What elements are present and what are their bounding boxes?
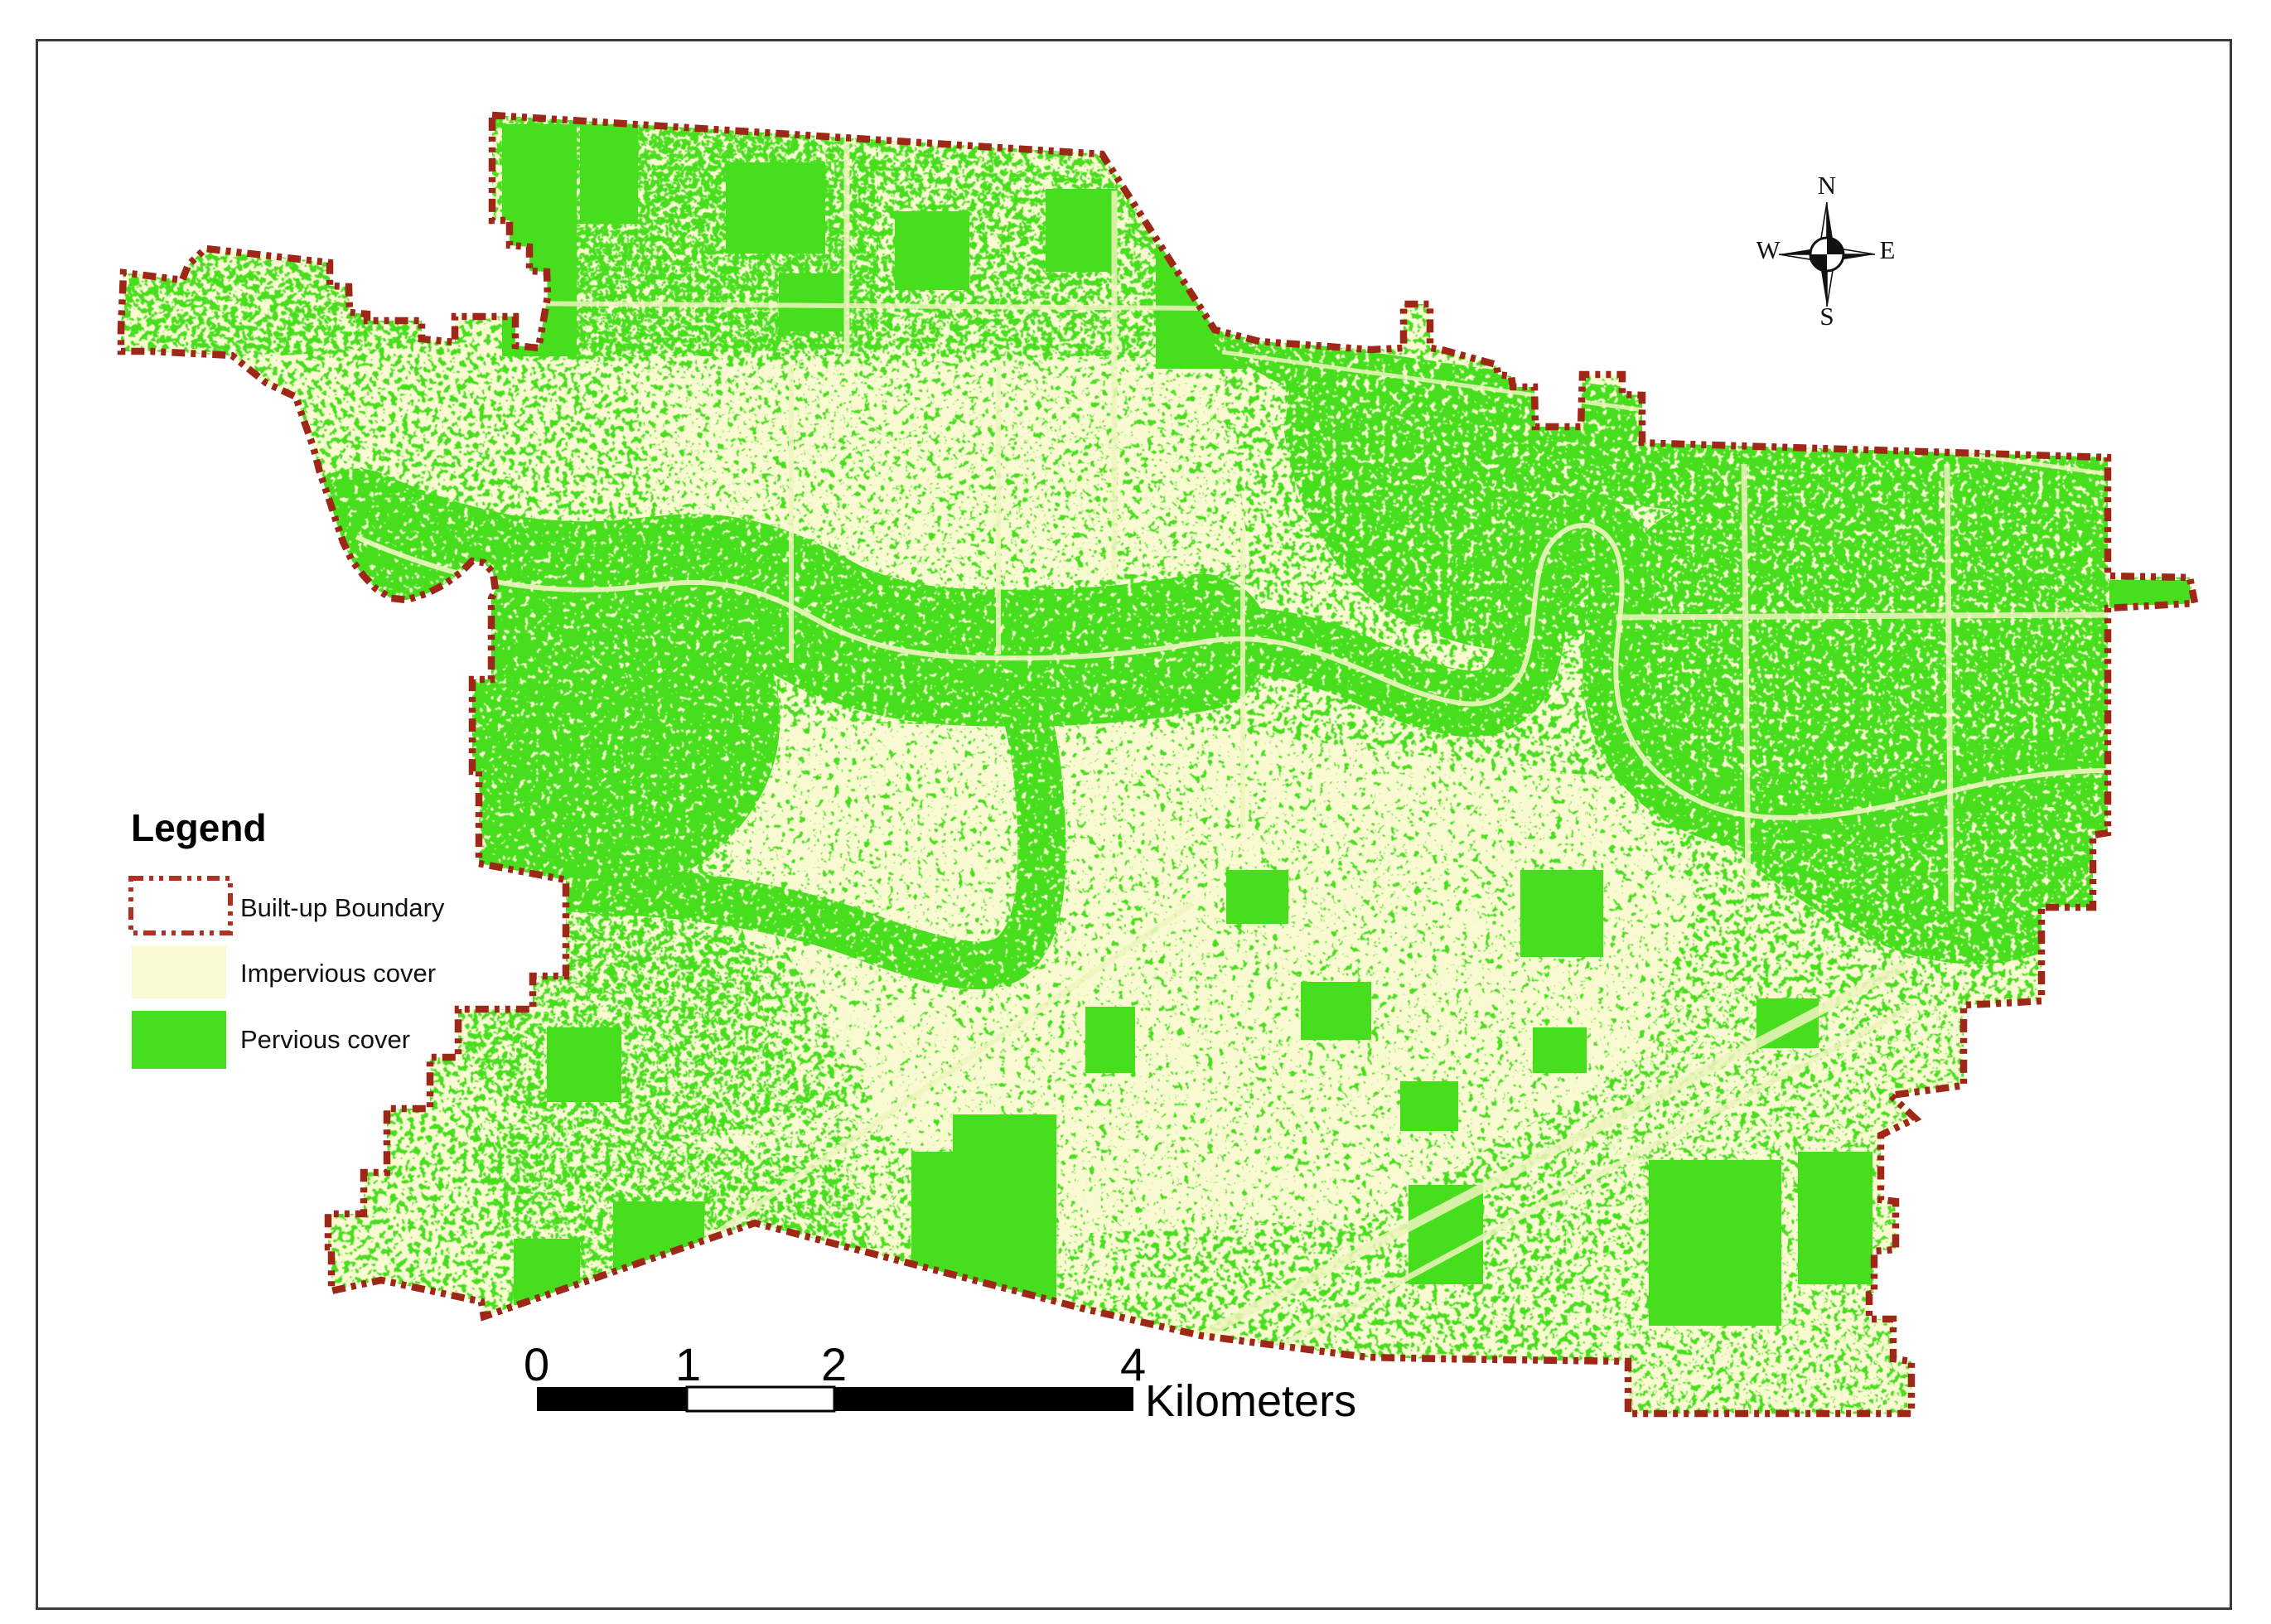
- svg-text:W: W: [1756, 235, 1781, 264]
- svg-text:N: N: [1818, 171, 1836, 200]
- svg-text:E: E: [1880, 235, 1896, 264]
